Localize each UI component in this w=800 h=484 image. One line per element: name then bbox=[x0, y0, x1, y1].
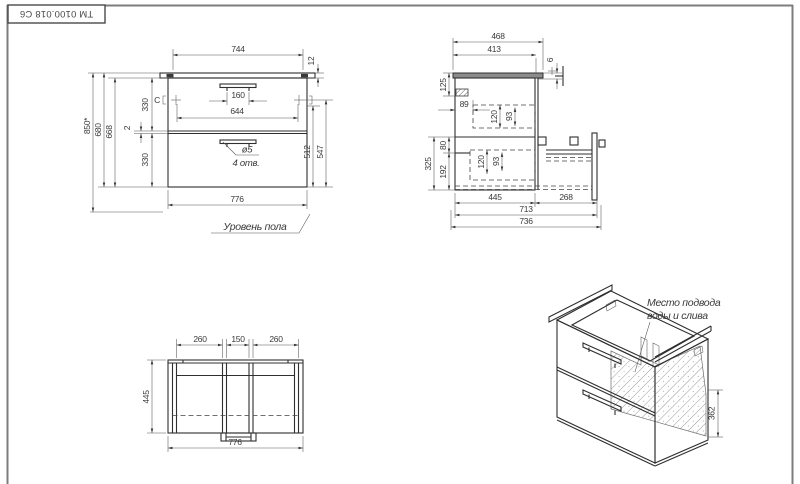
hole-note: ø5 4 отв. bbox=[223, 142, 259, 169]
dim-713: 713 bbox=[519, 204, 533, 214]
dim-80: 80 bbox=[438, 141, 448, 150]
dim-120-top: 120 bbox=[489, 110, 499, 124]
dim-6: 6 bbox=[545, 57, 555, 62]
dim-668: 668 bbox=[104, 125, 114, 139]
plan-view: 260 150 260 445 776 bbox=[141, 334, 303, 452]
dim-192: 192 bbox=[438, 165, 448, 179]
dim-362: 362 bbox=[707, 406, 717, 420]
dim-776-front: 776 bbox=[230, 194, 244, 204]
iso-back-left-rail bbox=[549, 285, 616, 322]
side-drawer-bottom-hidden: 120 93 bbox=[470, 150, 535, 180]
side-cabinet-outline bbox=[453, 73, 592, 190]
drawing-sheet: ТМ 0100.018 С6 C bbox=[0, 0, 800, 484]
dim-736: 736 bbox=[519, 216, 533, 226]
wall-hanger-bracket bbox=[548, 66, 563, 86]
hole-diameter: ø5 bbox=[242, 145, 254, 156]
dim-445-side: 445 bbox=[488, 192, 502, 202]
front-view: C 744 12 160 644 bbox=[82, 44, 333, 233]
wall-plate-and-slide bbox=[538, 133, 605, 200]
dim-512: 512 bbox=[302, 145, 312, 159]
dim-89: 89 bbox=[460, 99, 469, 109]
floor-level: Уровень пола bbox=[90, 212, 310, 233]
title-block: ТМ 0100.018 С6 bbox=[8, 5, 105, 23]
dim-2: 2 bbox=[122, 125, 132, 130]
dim-260-right: 260 bbox=[269, 334, 283, 344]
plan-outline bbox=[168, 360, 303, 441]
dim-680: 680 bbox=[93, 123, 103, 137]
dim-850: 850* bbox=[82, 117, 92, 134]
water-note-line2: воды и слива bbox=[647, 310, 708, 322]
dim-325: 325 bbox=[423, 157, 433, 171]
hole-count: 4 отв. bbox=[233, 158, 260, 169]
side-drawer-top-hidden: 120 93 bbox=[473, 105, 535, 128]
title-block-code: ТМ 0100.018 С6 bbox=[20, 8, 94, 19]
iso-view: Место подвода воды и слива 362 bbox=[549, 285, 723, 466]
technical-drawing: ТМ 0100.018 С6 C bbox=[0, 0, 800, 484]
floor-level-label: Уровень пола bbox=[222, 221, 287, 233]
wall-bracket-block bbox=[456, 89, 468, 96]
dim-744: 744 bbox=[231, 44, 245, 54]
water-note-line1: Место подвода bbox=[647, 297, 721, 309]
dim-93-bottom: 93 bbox=[491, 157, 501, 166]
mark-c-label: C bbox=[154, 95, 160, 105]
dim-776-plan: 776 bbox=[228, 437, 242, 447]
dim-547: 547 bbox=[315, 145, 325, 159]
dim-413: 413 bbox=[487, 44, 501, 54]
dim-93-top: 93 bbox=[504, 112, 514, 121]
dim-644: 644 bbox=[230, 106, 244, 116]
dim-260-left: 260 bbox=[193, 334, 207, 344]
dim-120-bottom: 120 bbox=[476, 155, 486, 169]
dim-12: 12 bbox=[306, 56, 316, 65]
dim-160: 160 bbox=[231, 90, 245, 100]
dim-125: 125 bbox=[438, 78, 448, 92]
side-view: 120 93 120 93 bbox=[423, 31, 605, 230]
dim-330-top: 330 bbox=[140, 98, 150, 112]
dim-468: 468 bbox=[491, 31, 505, 41]
dim-445-plan: 445 bbox=[141, 390, 151, 404]
dim-268: 268 bbox=[559, 192, 573, 202]
dim-150: 150 bbox=[231, 334, 245, 344]
dim-330-bottom: 330 bbox=[140, 153, 150, 167]
